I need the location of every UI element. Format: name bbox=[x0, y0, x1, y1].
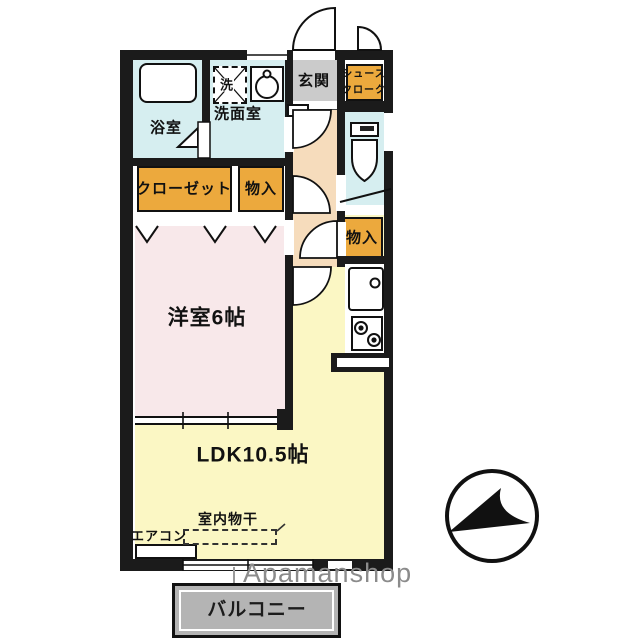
kitchen-counter-top bbox=[337, 358, 389, 367]
wall-segment bbox=[277, 409, 290, 430]
label-shoe-closet-1: シュース bbox=[342, 70, 386, 80]
window-top bbox=[247, 50, 287, 60]
bathtub-icon bbox=[139, 63, 197, 103]
label-balcony: バルコニー bbox=[207, 601, 307, 620]
indoor-drying-rail bbox=[183, 529, 277, 545]
aircon-unit bbox=[135, 544, 197, 559]
kitchen-sink-icon bbox=[348, 267, 384, 311]
floorplan-canvas: 浴室 洗 洗面室 玄関 シュース クローク クローゼット 物入 物入 洋室6帖 … bbox=[0, 0, 640, 640]
door-gap-entrance bbox=[293, 50, 335, 60]
wall-segment bbox=[202, 60, 210, 158]
entrance-door-arc bbox=[293, 8, 381, 50]
label-indoor-drying: 室内物干 bbox=[198, 512, 258, 526]
entrance-door-leaf bbox=[287, 104, 309, 117]
stove-icon bbox=[351, 316, 383, 351]
door-gap-washroom bbox=[284, 117, 294, 152]
door-gap-western-room bbox=[284, 220, 294, 255]
closet-door-strip bbox=[135, 212, 287, 226]
door-gap-storage bbox=[336, 222, 346, 256]
label-shoe-closet-2: クローク bbox=[342, 86, 386, 96]
label-ldk: LDK10.5帖 bbox=[196, 445, 309, 466]
north-compass-icon bbox=[447, 471, 537, 561]
wall-segment bbox=[120, 50, 133, 571]
label-closet: クローゼット bbox=[136, 182, 232, 197]
door-gap-toilet bbox=[336, 175, 346, 211]
hallway bbox=[293, 110, 337, 267]
wall-segment bbox=[337, 256, 384, 264]
watermark-tick bbox=[233, 567, 235, 584]
label-entrance: 玄関 bbox=[298, 74, 330, 89]
window-toilet-side bbox=[384, 113, 393, 151]
label-bath: 浴室 bbox=[150, 121, 182, 136]
wall-segment bbox=[337, 101, 384, 112]
washbasin-icon bbox=[250, 66, 284, 102]
label-aircon: エアコン bbox=[131, 530, 187, 543]
label-storage-upper: 物入 bbox=[245, 182, 277, 197]
label-storage-right: 物入 bbox=[346, 231, 378, 246]
toilet-tank-lid bbox=[360, 126, 374, 131]
wall-segment bbox=[133, 158, 293, 166]
sliding-partition bbox=[135, 416, 277, 425]
label-washer: 洗 bbox=[220, 79, 234, 92]
label-western-room: 洋室6帖 bbox=[168, 308, 247, 329]
label-washroom: 洗面室 bbox=[214, 107, 262, 122]
toilet-door-area bbox=[345, 205, 384, 215]
